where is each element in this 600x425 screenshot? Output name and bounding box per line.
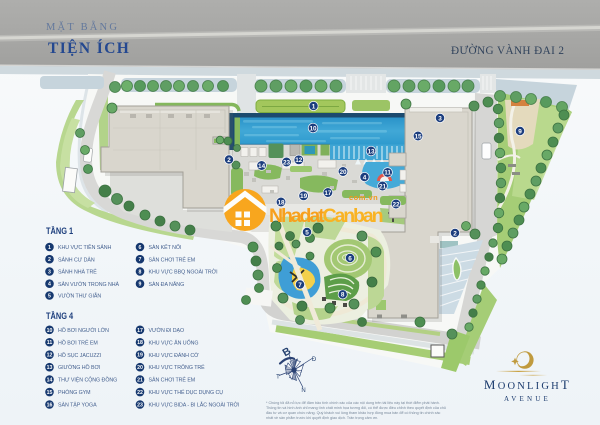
svg-text:VƯỜN THƯ GIÃN: VƯỜN THƯ GIÃN: [58, 293, 101, 300]
svg-text:KHU VỰC ĂN UỐNG: KHU VỰC ĂN UỐNG: [149, 339, 199, 346]
svg-text:HỒ SỤC JACUZZI: HỒ SỤC JACUZZI: [58, 352, 101, 359]
svg-text:23: 23: [137, 403, 143, 409]
svg-text:2: 2: [48, 257, 51, 263]
svg-text:20: 20: [137, 365, 143, 371]
svg-text:KHU VỰC BBQ NGOÀI TRỜI: KHU VỰC BBQ NGOÀI TRỜI: [149, 269, 218, 276]
svg-text:4: 4: [48, 282, 51, 288]
svg-text:6: 6: [139, 245, 142, 251]
svg-text:18: 18: [137, 340, 143, 346]
svg-text:SẢNH NHÀ TRẺ: SẢNH NHÀ TRẺ: [58, 269, 97, 276]
svg-text:HỒ BƠI TRẺ EM: HỒ BƠI TRẺ EM: [58, 339, 98, 346]
svg-text:22: 22: [137, 390, 143, 396]
svg-text:SÂN CHƠI TRẺ EM: SÂN CHƠI TRẺ EM: [149, 377, 196, 384]
svg-text:14: 14: [47, 378, 53, 384]
svg-text:SÀN KẾT NỐI: SÀN KẾT NỐI: [149, 244, 182, 251]
svg-text:9: 9: [139, 282, 142, 288]
svg-text:VƯỜN ĐI DẠO: VƯỜN ĐI DẠO: [149, 327, 185, 334]
svg-text:3: 3: [48, 270, 51, 276]
svg-text:SÂN VƯỜN TRONG NHÀ: SÂN VƯỜN TRONG NHÀ: [58, 281, 120, 288]
svg-text:21: 21: [137, 378, 143, 384]
svg-text:1: 1: [48, 245, 51, 251]
svg-text:11: 11: [47, 340, 53, 346]
svg-text:THƯ VIỆN CỘNG ĐỒNG: THƯ VIỆN CỘNG ĐỒNG: [58, 376, 117, 384]
svg-text:8: 8: [139, 270, 142, 276]
svg-text:KHU VỰC TIỀN SẢNH: KHU VỰC TIỀN SẢNH: [58, 244, 112, 251]
svg-text:HỒ BƠI NGƯỜI LỚN: HỒ BƠI NGƯỜI LỚN: [58, 327, 109, 334]
svg-text:SÀN ĐA NĂNG: SÀN ĐA NĂNG: [149, 281, 185, 288]
svg-text:13: 13: [47, 365, 53, 371]
svg-text:PHÒNG GYM: PHÒNG GYM: [58, 389, 91, 396]
svg-text:KHU VỰC ĐÁNH CỜ: KHU VỰC ĐÁNH CỜ: [149, 352, 200, 359]
svg-text:KHU VỰC THỂ DỤC DỤNG CỤ: KHU VỰC THỂ DỤC DỤNG CỤ: [149, 389, 224, 396]
svg-text:GIƯỜNG HỒ BƠI: GIƯỜNG HỒ BƠI: [58, 364, 100, 371]
svg-text:5: 5: [48, 294, 51, 300]
svg-text:15: 15: [47, 390, 53, 396]
svg-text:10: 10: [47, 328, 53, 334]
svg-text:19: 19: [137, 353, 143, 359]
svg-text:12: 12: [47, 353, 53, 359]
svg-text:SÀN TẬP YOGA: SÀN TẬP YOGA: [58, 402, 97, 409]
svg-text:KHU VỰC BIDA - BI LẮC NGOÀI TR: KHU VỰC BIDA - BI LẮC NGOÀI TRỜI: [149, 401, 240, 409]
svg-text:17: 17: [137, 328, 143, 334]
svg-text:SÂN CHƠI TRẺ EM: SÂN CHƠI TRẺ EM: [149, 256, 196, 263]
svg-text:SẢNH CƯ DÂN: SẢNH CƯ DÂN: [58, 256, 95, 263]
svg-text:KHU VỰC TRÔNG TRẺ: KHU VỰC TRÔNG TRẺ: [149, 364, 206, 371]
svg-text:7: 7: [139, 257, 142, 263]
svg-text:16: 16: [47, 403, 53, 409]
